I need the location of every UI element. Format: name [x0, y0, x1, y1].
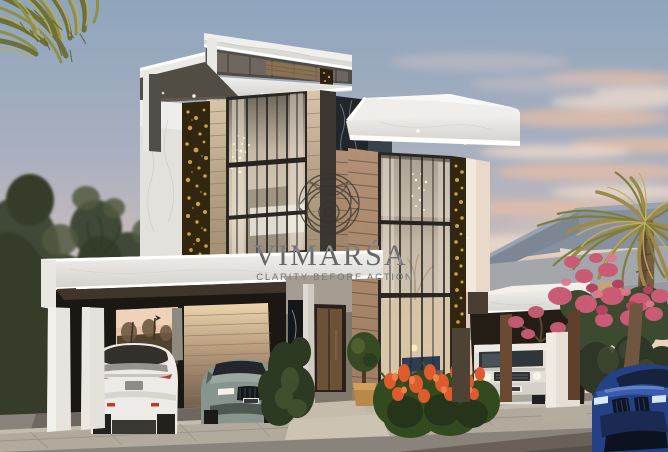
svg-text:CLARITY BEFORE ACTION: CLARITY BEFORE ACTION	[256, 272, 413, 283]
svg-text:VIMARŚA: VIMARŚA	[254, 239, 408, 272]
